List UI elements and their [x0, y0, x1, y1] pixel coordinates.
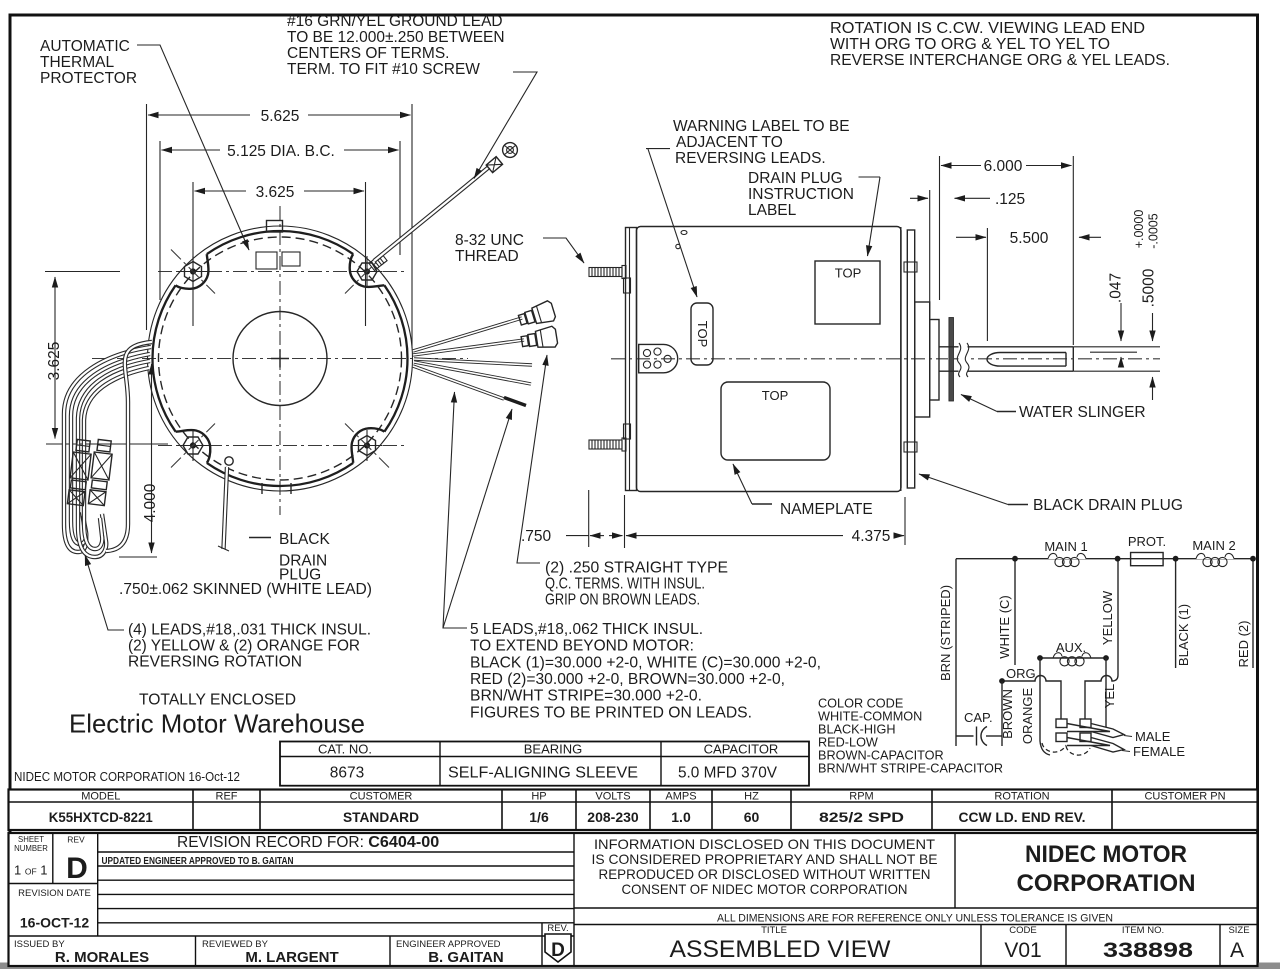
svg-text:NUMBER: NUMBER: [14, 844, 48, 853]
svg-text:TITLE: TITLE: [761, 925, 787, 936]
svg-text:(2) .250 STRAIGHT TYPE: (2) .250 STRAIGHT TYPE: [545, 560, 728, 577]
svg-text:338898: 338898: [1103, 939, 1193, 962]
svg-text:ORANGE: ORANGE: [1020, 688, 1035, 745]
svg-text:B. GAITAN: B. GAITAN: [428, 949, 504, 966]
svg-text:TOP: TOP: [835, 266, 862, 281]
svg-text:COLOR CODE: COLOR CODE: [818, 697, 903, 711]
svg-text:ALL DIMENSIONS ARE FOR REFEREN: ALL DIMENSIONS ARE FOR REFERENCE ONLY UN…: [717, 913, 1113, 925]
svg-text:-.0005: -.0005: [1147, 213, 1161, 248]
svg-text:TOP: TOP: [762, 388, 789, 403]
svg-text:WARNING LABEL TO BE: WARNING LABEL TO BE: [673, 118, 850, 135]
svg-text:BROWN: BROWN: [1000, 689, 1015, 739]
svg-text:16-OCT-12: 16-OCT-12: [20, 915, 89, 931]
svg-text:ADJACENT TO: ADJACENT TO: [676, 134, 783, 151]
svg-text:YELLOW: YELLOW: [1100, 590, 1115, 645]
svg-text:REV: REV: [67, 835, 85, 845]
svg-text:INFORMATION DISCLOSED ON THIS: INFORMATION DISCLOSED ON THIS DOCUMENT: [594, 836, 935, 852]
svg-text:FEMALE: FEMALE: [1133, 744, 1185, 759]
svg-text:CUSTOMER PN: CUSTOMER PN: [1144, 791, 1225, 803]
svg-text:TOTALLY ENCLOSED: TOTALLY ENCLOSED: [139, 692, 296, 709]
svg-text:DRAIN PLUG: DRAIN PLUG: [748, 170, 843, 187]
svg-text:LABEL: LABEL: [748, 202, 797, 219]
svg-text:SIZE: SIZE: [1228, 925, 1249, 936]
svg-text:5.625: 5.625: [261, 108, 300, 125]
svg-text:MODEL: MODEL: [81, 791, 120, 803]
svg-text:SHEET: SHEET: [18, 835, 44, 844]
svg-text:5 LEADS,#18,.062 THICK INSUL.: 5 LEADS,#18,.062 THICK INSUL.: [470, 621, 703, 638]
svg-text:PROT.: PROT.: [1128, 534, 1166, 549]
svg-text:REF: REF: [216, 791, 238, 803]
svg-text:NAMEPLATE: NAMEPLATE: [780, 501, 873, 518]
svg-text:NIDEC MOTOR CORPORATION 16-Oct: NIDEC MOTOR CORPORATION 16-Oct-12: [14, 770, 240, 784]
svg-text:SELF-ALIGNING SLEEVE: SELF-ALIGNING SLEEVE: [448, 765, 638, 782]
svg-text:6.000: 6.000: [984, 158, 1023, 175]
svg-text:3.625: 3.625: [256, 184, 295, 201]
svg-text:CAT. NO.: CAT. NO.: [318, 742, 372, 757]
svg-text:MAIN 2: MAIN 2: [1192, 538, 1235, 553]
svg-text:4.375: 4.375: [852, 528, 891, 545]
svg-text:CAPACITOR: CAPACITOR: [704, 742, 779, 757]
svg-text:RED (2)=30.000 +2-0, BROWN=30.: RED (2)=30.000 +2-0, BROWN=30.000 +2-0,: [470, 671, 785, 688]
svg-text:Q.C. TERMS. WITH INSUL.: Q.C. TERMS. WITH INSUL.: [545, 576, 705, 593]
svg-text:D: D: [551, 940, 565, 961]
svg-text:+.0000: +.0000: [1132, 210, 1146, 249]
svg-text:TOP: TOP: [695, 321, 710, 348]
svg-text:THREAD: THREAD: [455, 248, 519, 265]
svg-text:BROWN-CAPACITOR: BROWN-CAPACITOR: [818, 749, 944, 763]
svg-text:ITEM NO.: ITEM NO.: [1122, 925, 1164, 936]
svg-text:UPDATED ENGINEER APPROVED TO B: UPDATED ENGINEER APPROVED TO B. GAITAN: [102, 856, 294, 867]
svg-text:CONSENT OF NIDEC MOTOR CORPORA: CONSENT OF NIDEC MOTOR CORPORATION: [622, 881, 908, 897]
svg-text:MALE: MALE: [1135, 729, 1171, 744]
svg-text:CCW LD. END REV.: CCW LD. END REV.: [959, 809, 1086, 825]
svg-text:1/6: 1/6: [529, 809, 549, 825]
svg-text:YEL: YEL: [1102, 684, 1117, 709]
svg-text:R. MORALES: R. MORALES: [55, 949, 149, 966]
svg-text:CORPORATION: CORPORATION: [1017, 870, 1196, 897]
svg-text:ORG: ORG: [1006, 666, 1036, 681]
svg-text:ASSEMBLED VIEW: ASSEMBLED VIEW: [670, 936, 891, 963]
svg-text:M. LARGENT: M. LARGENT: [245, 949, 338, 966]
svg-text:TERM. TO FIT #10 SCREW: TERM. TO FIT #10 SCREW: [287, 61, 480, 78]
svg-text:4.000: 4.000: [142, 483, 159, 522]
svg-text:REVERSING ROTATION: REVERSING ROTATION: [128, 654, 302, 671]
svg-text:5.125 DIA. B.C.: 5.125 DIA. B.C.: [227, 143, 335, 160]
svg-text:AMPS: AMPS: [665, 791, 696, 803]
svg-text:.750±.062 SKINNED (WHITE LEAD): .750±.062 SKINNED (WHITE LEAD): [119, 581, 372, 598]
svg-text:BLACK (1): BLACK (1): [1176, 604, 1191, 666]
svg-text:RED (2): RED (2): [1236, 621, 1251, 668]
svg-text:8-32 UNC: 8-32 UNC: [455, 232, 524, 249]
svg-text:IS CONSIDERED PROPRIETARY AND: IS CONSIDERED PROPRIETARY AND SHALL NOT …: [592, 851, 938, 867]
svg-text:THERMAL: THERMAL: [40, 54, 114, 71]
svg-text:REVISION RECORD FOR: C6404-00: REVISION RECORD FOR: C6404-00: [177, 834, 439, 851]
svg-text:208-230: 208-230: [587, 809, 639, 825]
svg-text:BRN/WHT STRIPE=30.000 +2-0.: BRN/WHT STRIPE=30.000 +2-0.: [470, 688, 702, 705]
svg-text:BRN (STRIPED): BRN (STRIPED): [938, 585, 953, 681]
svg-text:TO EXTEND BEYOND MOTOR:: TO EXTEND BEYOND MOTOR:: [470, 638, 694, 655]
svg-text:60: 60: [744, 809, 760, 825]
svg-text:A: A: [1230, 939, 1244, 962]
svg-text:5.0 MFD 370V: 5.0 MFD 370V: [678, 765, 778, 782]
svg-text:1.0: 1.0: [671, 809, 691, 825]
svg-text:HP: HP: [531, 791, 546, 803]
svg-text:REPRODUCED OR DISCLOSED WITHOU: REPRODUCED OR DISCLOSED WITHOUT WRITTEN: [599, 866, 931, 882]
svg-text:(4) LEADS,#18,.031 THICK INSUL: (4) LEADS,#18,.031 THICK INSUL.: [128, 622, 371, 639]
svg-text:D: D: [66, 852, 88, 885]
svg-text:ROTATION: ROTATION: [994, 791, 1049, 803]
svg-text:REVERSING LEADS.: REVERSING LEADS.: [675, 150, 826, 167]
svg-text:INSTRUCTION: INSTRUCTION: [748, 186, 854, 203]
svg-text:FIGURES TO BE PRINTED ON LEADS: FIGURES TO BE PRINTED ON LEADS.: [470, 704, 752, 721]
svg-text:V01: V01: [1004, 939, 1041, 962]
svg-text:#16 GRN/YEL GROUND LEAD: #16 GRN/YEL GROUND LEAD: [287, 13, 503, 30]
svg-text:REVISION DATE: REVISION DATE: [18, 888, 91, 899]
svg-text:TO BE 12.000±.250 BETWEEN: TO BE 12.000±.250 BETWEEN: [287, 29, 505, 46]
svg-text:BLACK: BLACK: [279, 531, 330, 548]
svg-text:VOLTS: VOLTS: [595, 791, 630, 803]
svg-text:RPM: RPM: [849, 791, 873, 803]
svg-text:Electric Motor Warehouse: Electric Motor Warehouse: [69, 709, 365, 739]
svg-text:BRN/WHT STRIPE-CAPACITOR: BRN/WHT STRIPE-CAPACITOR: [818, 762, 1003, 776]
svg-text:GRIP ON BROWN LEADS.: GRIP ON BROWN LEADS.: [545, 592, 700, 609]
svg-text:CENTERS OF TERMS.: CENTERS OF TERMS.: [287, 45, 449, 62]
svg-text:825/2 SPD: 825/2 SPD: [819, 809, 904, 825]
svg-text:HZ: HZ: [744, 791, 759, 803]
svg-text:.750: .750: [521, 528, 552, 545]
svg-text:PROTECTOR: PROTECTOR: [40, 70, 137, 87]
svg-text:K55HXTCD-8221: K55HXTCD-8221: [49, 809, 153, 825]
svg-text:BLACK-HIGH: BLACK-HIGH: [818, 723, 896, 737]
svg-text:3.625: 3.625: [46, 342, 63, 381]
svg-text:BLACK DRAIN PLUG: BLACK DRAIN PLUG: [1033, 497, 1183, 514]
svg-text:WATER SLINGER: WATER SLINGER: [1019, 404, 1146, 421]
svg-text:ROTATION IS C.CW. VIEWING LEAD: ROTATION IS C.CW. VIEWING LEAD END: [830, 20, 1145, 37]
svg-text:REV.: REV.: [547, 923, 568, 934]
svg-text:CAP.: CAP.: [964, 710, 993, 725]
svg-text:WITH ORG TO ORG & YEL TO YEL T: WITH ORG TO ORG & YEL TO YEL TO: [830, 36, 1110, 53]
svg-text:REVERSE INTERCHANGE ORG & YEL: REVERSE INTERCHANGE ORG & YEL LEADS.: [830, 52, 1170, 69]
svg-text:NIDEC MOTOR: NIDEC MOTOR: [1025, 841, 1187, 868]
svg-text:WHITE (C): WHITE (C): [997, 595, 1012, 659]
svg-text:BLACK (1)=30.000 +2-0, WHITE (: BLACK (1)=30.000 +2-0, WHITE (C)=30.000 …: [470, 654, 821, 671]
svg-text:WHITE-COMMON: WHITE-COMMON: [818, 710, 922, 724]
svg-text:MAIN 1: MAIN 1: [1044, 539, 1087, 554]
svg-text:CUSTOMER: CUSTOMER: [350, 791, 413, 803]
svg-text:5.500: 5.500: [1010, 230, 1049, 247]
svg-text:AUX.: AUX.: [1056, 640, 1086, 655]
svg-text:.047: .047: [1108, 273, 1125, 303]
svg-text:.125: .125: [995, 191, 1025, 208]
svg-text:.5000: .5000: [1141, 268, 1158, 307]
svg-text:RED-LOW: RED-LOW: [818, 736, 878, 750]
svg-text:CODE: CODE: [1009, 925, 1036, 936]
svg-text:STANDARD: STANDARD: [343, 809, 419, 825]
svg-text:AUTOMATIC: AUTOMATIC: [40, 38, 130, 55]
svg-text:BEARING: BEARING: [524, 742, 583, 757]
svg-text:8673: 8673: [330, 765, 364, 782]
svg-text:(2) YELLOW & (2) ORANGE FOR: (2) YELLOW & (2) ORANGE FOR: [128, 638, 360, 655]
